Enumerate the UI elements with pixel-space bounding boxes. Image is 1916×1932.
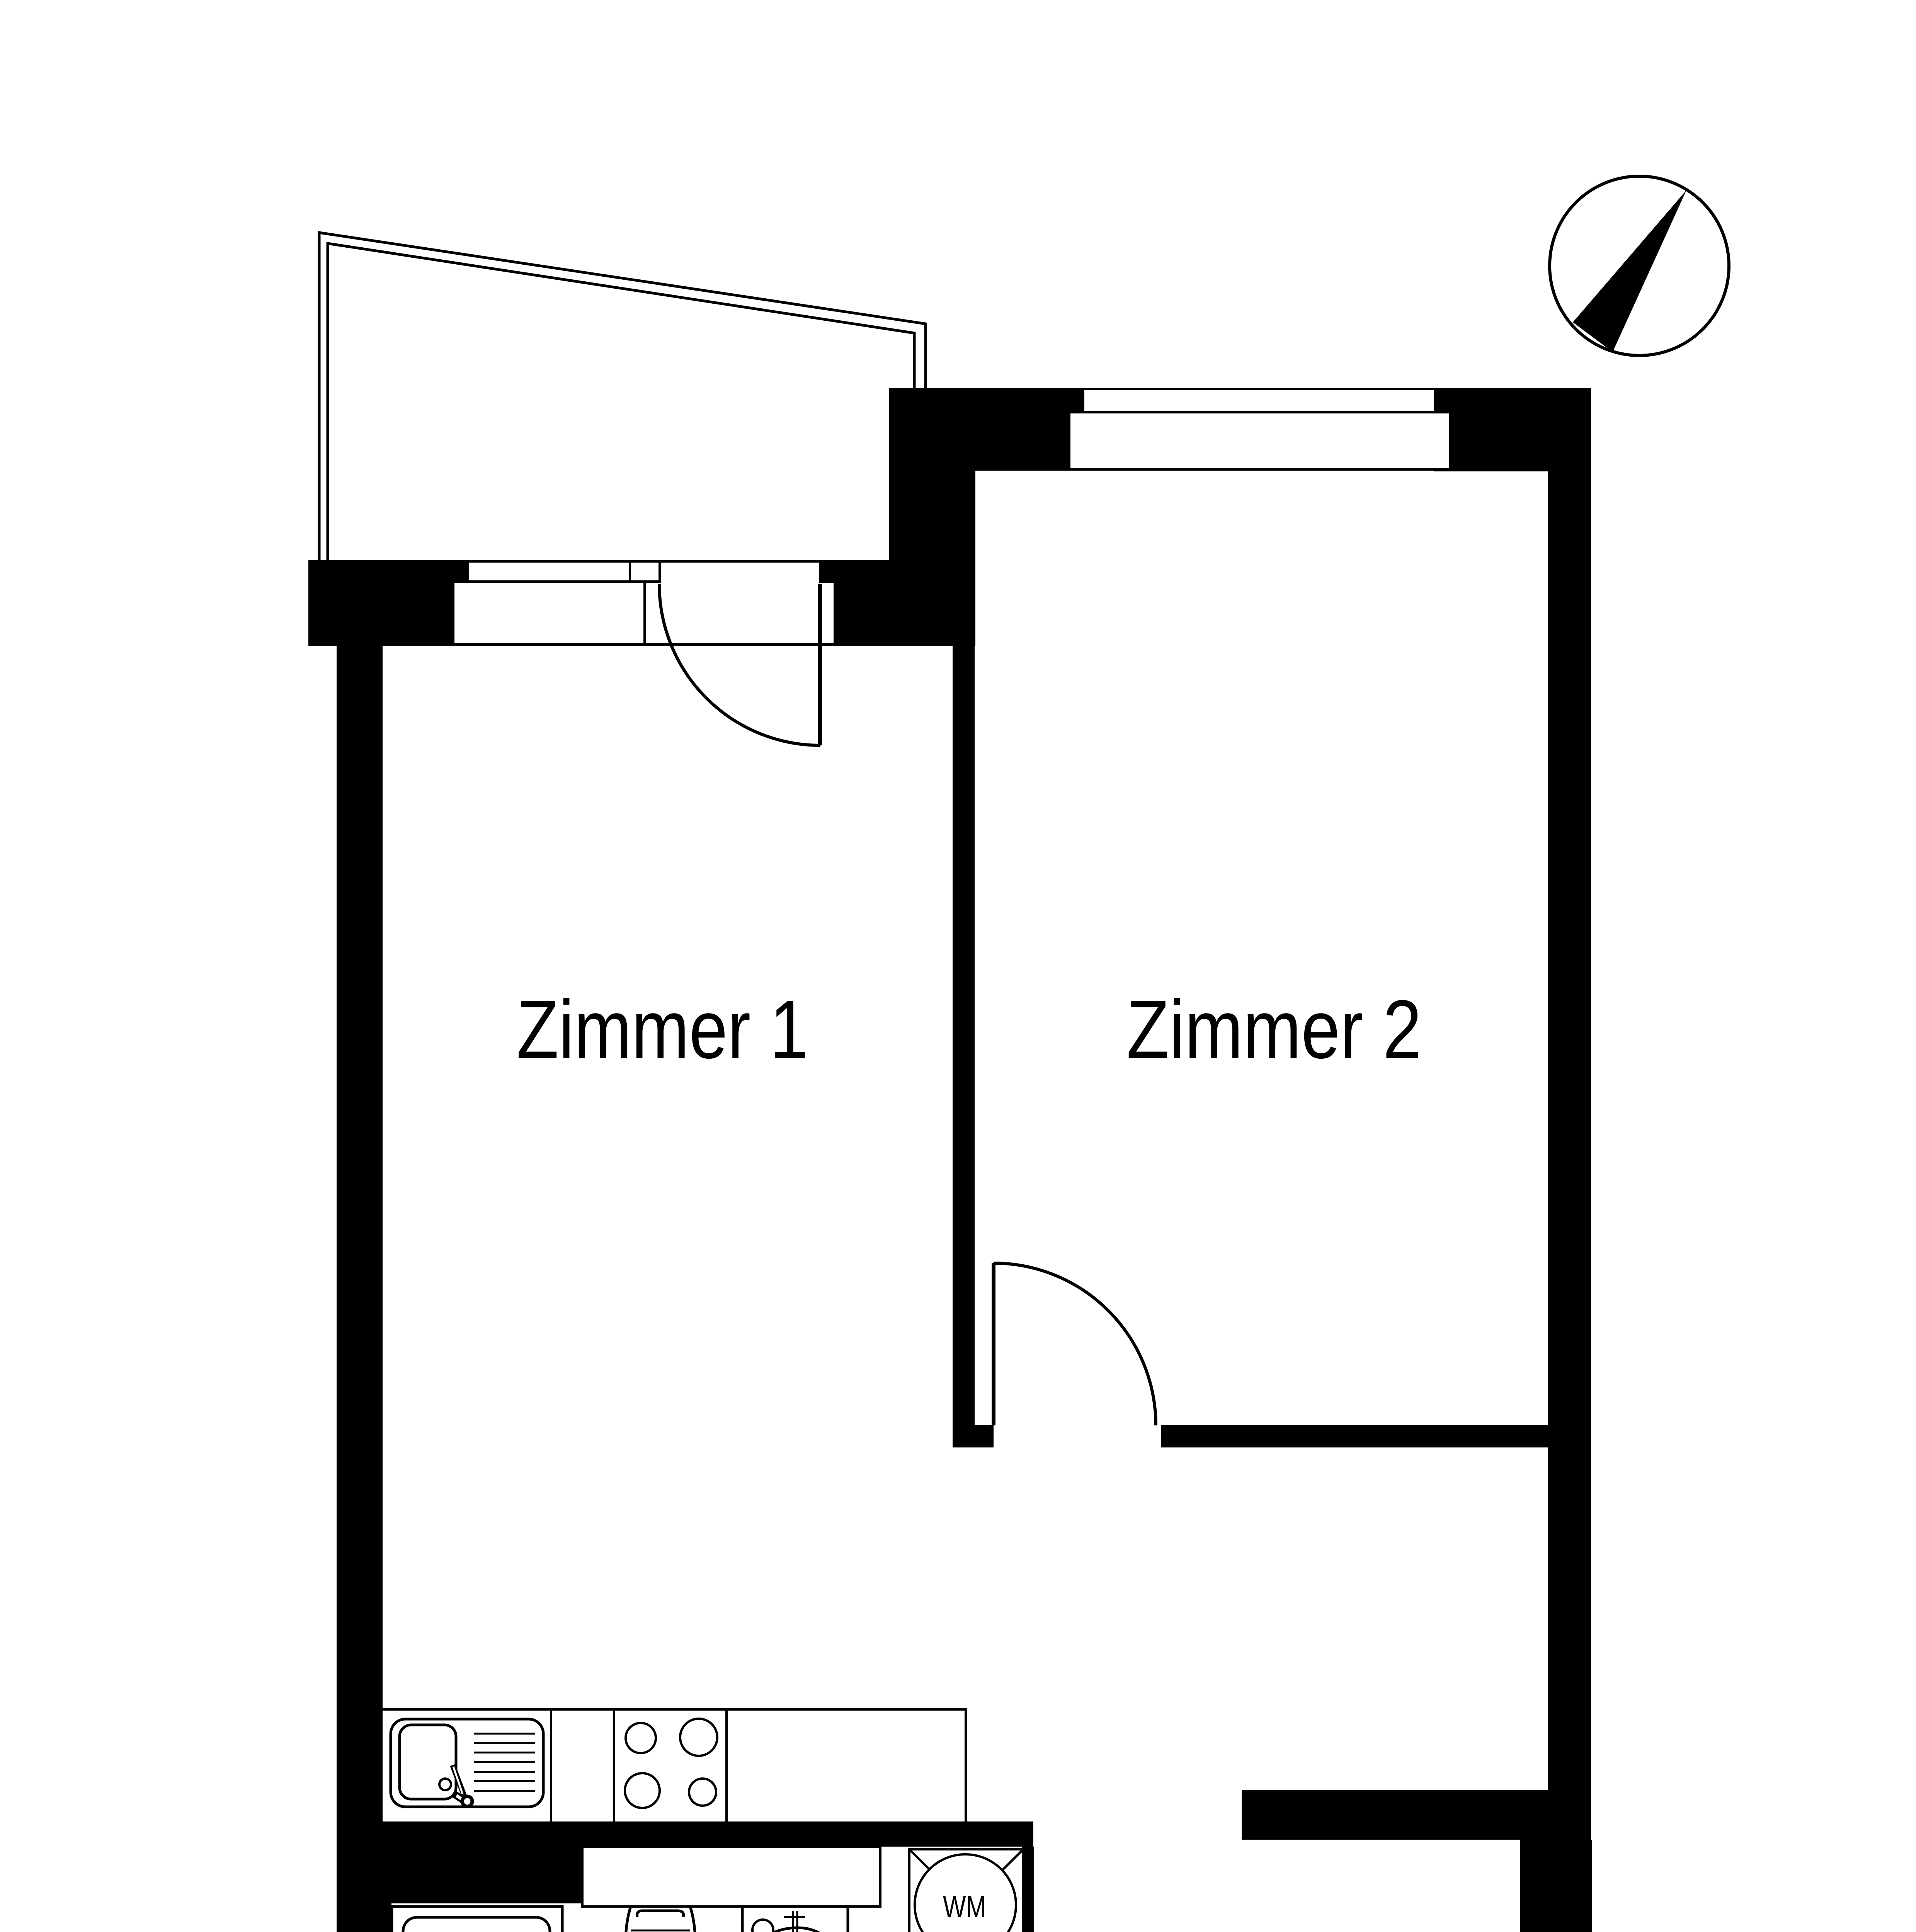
svg-text:Zimmer 2: Zimmer 2 [1126, 983, 1422, 1076]
svg-text:Zimmer 1: Zimmer 1 [517, 983, 808, 1076]
svg-text:WM: WM [943, 1889, 986, 1924]
